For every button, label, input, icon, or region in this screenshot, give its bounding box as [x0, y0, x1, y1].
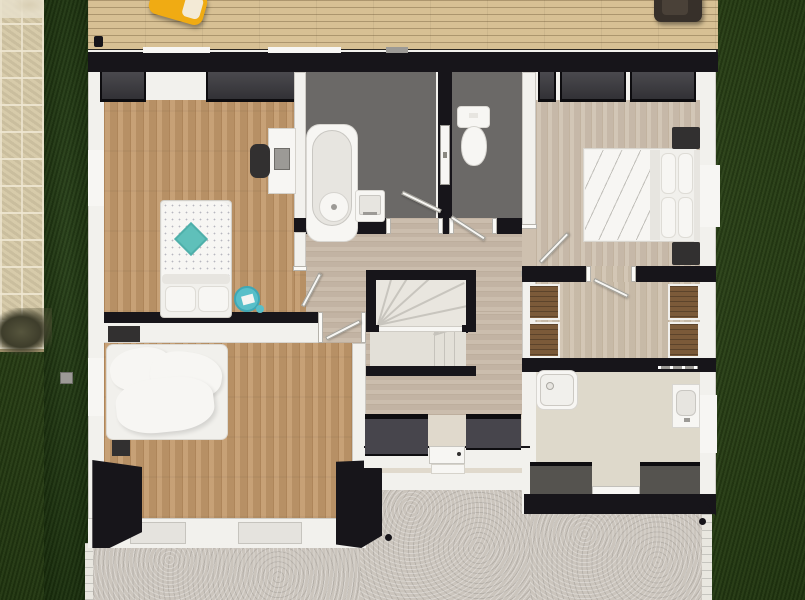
bedroom1-wardrobe	[100, 72, 146, 102]
bedroom1-door-opening	[294, 270, 306, 316]
south-window	[238, 522, 302, 544]
pillow	[678, 153, 693, 194]
master-wardrobe	[538, 72, 556, 102]
wooden-wardrobe	[528, 322, 560, 358]
wall-cap	[521, 224, 537, 229]
bathroom2-wall-block	[530, 462, 592, 496]
shower-base	[540, 374, 574, 406]
nightstand	[672, 127, 700, 149]
nightstand	[112, 440, 130, 456]
brown-chair	[654, 0, 702, 22]
deck-threshold	[268, 47, 341, 53]
wall-cap	[386, 218, 391, 234]
staircase-lower-flight	[370, 332, 466, 366]
bedroom2-corner-closet	[336, 460, 382, 548]
duvet-fold	[650, 150, 660, 240]
dried-shrub	[0, 308, 52, 356]
laptop	[274, 148, 290, 170]
wc-door-handle	[443, 152, 447, 158]
deck-threshold	[143, 47, 210, 53]
wall-shelf	[108, 326, 140, 342]
entry-cabinet	[466, 414, 521, 450]
flush-button	[469, 113, 478, 118]
southwest-corner-closet	[88, 460, 142, 548]
pillow	[678, 197, 693, 238]
vanity-basin	[676, 390, 696, 416]
master-wardrobe	[560, 72, 626, 102]
pillow	[165, 286, 196, 312]
bathroom2-wall-block	[640, 462, 700, 496]
east-window	[700, 395, 717, 453]
wall-cap	[586, 266, 591, 282]
wall-cap	[631, 266, 636, 282]
west-window	[88, 358, 104, 416]
headboard	[694, 150, 700, 242]
concrete-patio-right	[530, 506, 712, 600]
nightstand	[672, 242, 700, 265]
outdoor-floor-light	[699, 518, 706, 525]
pillow	[198, 286, 229, 312]
east-window	[700, 165, 720, 227]
book	[241, 294, 255, 306]
sink-drain-slot	[363, 212, 377, 215]
wc-door-closed	[440, 125, 450, 185]
outdoor-floor-light	[385, 534, 392, 541]
pillow	[661, 197, 676, 238]
duvet-fold	[162, 274, 230, 284]
entry-cabinet	[365, 414, 428, 456]
stair-wall	[366, 270, 476, 280]
front-door-handle	[457, 452, 461, 456]
stair-wall	[366, 270, 376, 332]
north-exterior-wall	[88, 52, 718, 72]
teal-cup	[256, 305, 264, 313]
grass-tuft	[12, 0, 46, 14]
wall-cap	[318, 312, 323, 343]
bedroom2-east-wall	[352, 343, 366, 463]
lawn-strip	[44, 0, 88, 600]
drain	[331, 204, 337, 210]
floor-plan-render	[0, 0, 805, 600]
bathroom-door-opening	[390, 218, 440, 234]
wall-cap	[492, 218, 497, 234]
tap	[684, 418, 690, 422]
desk-chair	[250, 144, 270, 178]
porch-step	[431, 464, 465, 474]
wooden-wardrobe	[668, 284, 700, 320]
wooden-wardrobe	[528, 284, 560, 320]
stair-wall	[466, 270, 476, 332]
towel-rail	[658, 366, 698, 369]
toilet-bowl	[461, 126, 487, 166]
master-duvet	[585, 150, 657, 240]
wall-cap	[438, 218, 443, 234]
concrete-patio-left	[88, 543, 360, 600]
staircase-upper-flight	[376, 280, 466, 327]
stair-wall	[366, 366, 476, 376]
drain	[546, 382, 554, 390]
wooden-wardrobe	[668, 322, 700, 358]
bathroom2-south-wall	[524, 494, 716, 514]
stepping-stone	[60, 372, 73, 384]
master-wardrobe	[630, 72, 696, 102]
stone-path	[0, 0, 44, 352]
pillow	[661, 153, 676, 194]
wall-vent	[386, 47, 408, 53]
wall-cap	[293, 266, 307, 271]
west-window	[88, 150, 104, 206]
bedroom1-wardrobe	[206, 72, 298, 102]
deck-post	[94, 36, 103, 47]
paver-edge-left	[85, 543, 93, 600]
